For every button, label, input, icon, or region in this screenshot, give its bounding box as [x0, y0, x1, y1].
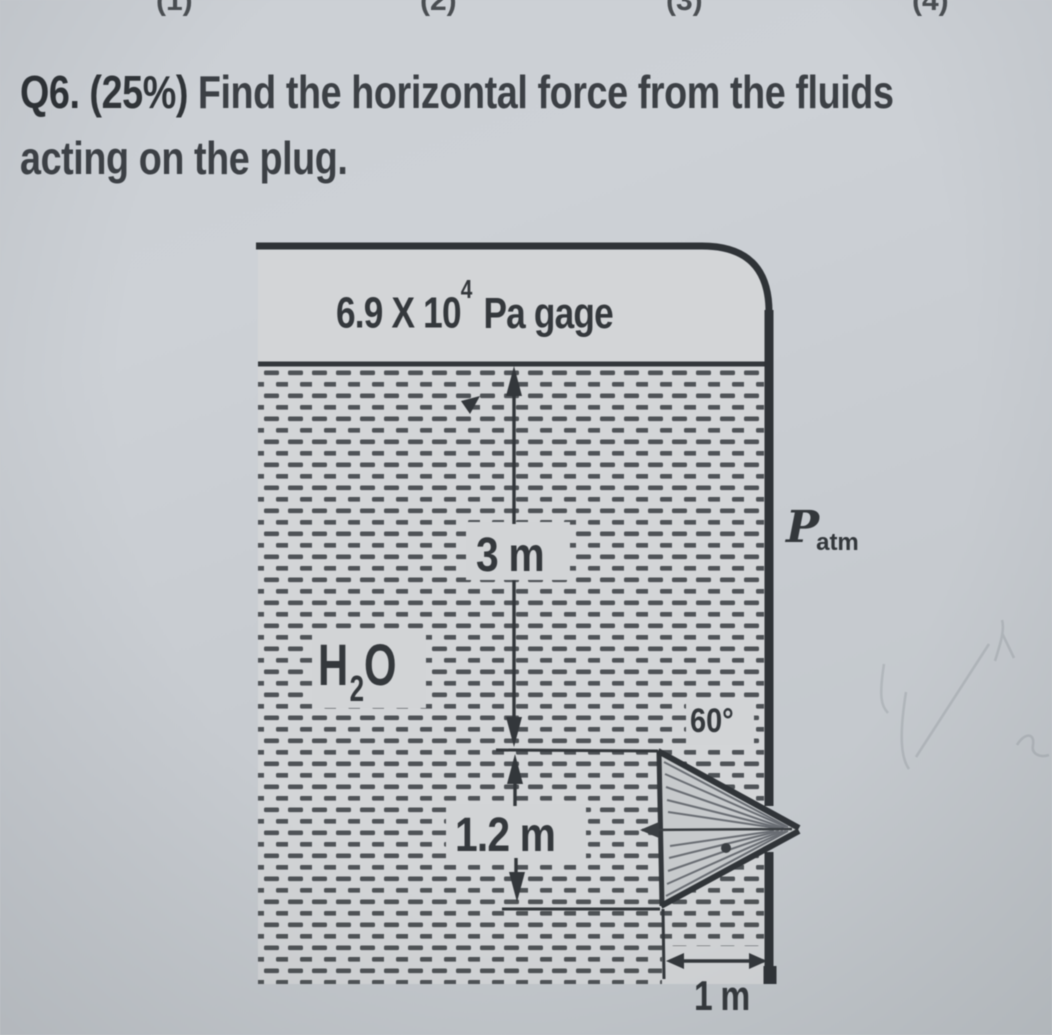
atmosphere-label: Patm [786, 502, 862, 553]
depth-dimension-label: 3 m [476, 528, 544, 583]
water-label: H2O [318, 632, 398, 699]
offset-dimension-label: 1 m [694, 972, 750, 1020]
pressure-exponent: 4 [461, 274, 473, 304]
tank-figure [0, 0, 1052, 1035]
atm-symbol: P [786, 502, 819, 553]
pencil-marks [881, 620, 1049, 769]
plug-axis-line [642, 829, 792, 830]
atm-subscript: atm [816, 529, 859, 556]
water-h: H [318, 633, 350, 698]
cone-angle-label: 60° [690, 702, 734, 741]
pressure-label: 6.9 X 104Pa gage [336, 288, 613, 339]
plug-dimension-label: 1.2 m [455, 808, 555, 863]
plug-center-mark [721, 843, 731, 853]
exam-page-photo: (1) (2) (3) (4) Q6.(25%)Find the horizon… [0, 0, 1052, 1035]
pressure-unit: Pa gage [484, 289, 613, 338]
pressure-mantissa: 6.9 X 10 [336, 289, 461, 338]
water-subscript: 2 [350, 668, 364, 709]
water-o: O [364, 633, 398, 698]
